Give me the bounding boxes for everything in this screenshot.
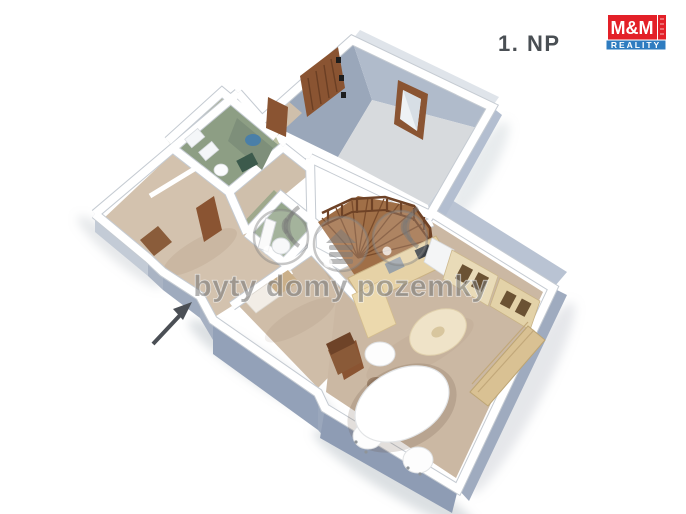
logo-reality-text: REALITY: [611, 40, 661, 50]
watermark-text: byty domy pozemky: [193, 270, 488, 303]
floor-label: 1. NP: [498, 31, 561, 56]
toilet: [214, 164, 228, 176]
washbasin: [245, 134, 261, 146]
entrance-arrow: [153, 302, 192, 344]
floorplan-image: byty domy pozemky 1. NP M&M REALITY: [0, 0, 686, 514]
house-icon: [314, 217, 368, 271]
logo-mm-text: M&M: [611, 18, 654, 38]
chair: [365, 342, 395, 366]
floorplan-svg: byty domy pozemky 1. NP M&M REALITY: [0, 0, 686, 514]
brand-logo: M&M REALITY: [606, 15, 666, 50]
